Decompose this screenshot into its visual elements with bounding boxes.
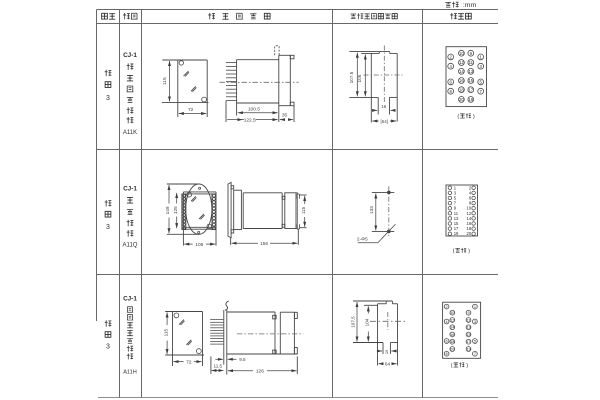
svg-text:3: 3: [474, 320, 476, 324]
svg-text:10: 10: [459, 51, 464, 56]
svg-text:107.5: 107.5: [351, 316, 356, 328]
svg-text:(: (: [453, 248, 455, 254]
svg-text:100.5: 100.5: [248, 107, 260, 113]
svg-text:105: 105: [357, 74, 362, 82]
svg-text:149: 149: [165, 206, 170, 214]
svg-text:CJ-1: CJ-1: [123, 296, 137, 303]
svg-text:104: 104: [365, 318, 370, 326]
svg-text:17: 17: [468, 87, 473, 92]
svg-text:5: 5: [474, 339, 476, 343]
svg-text:2-Φ5: 2-Φ5: [357, 237, 368, 243]
svg-text:64: 64: [385, 361, 391, 367]
svg-text:(: (: [457, 114, 459, 120]
svg-text:20: 20: [467, 231, 472, 236]
svg-text:20: 20: [459, 97, 464, 102]
svg-text:3: 3: [106, 224, 110, 231]
svg-text:CJ-1: CJ-1: [123, 52, 137, 59]
svg-text:16: 16: [384, 349, 389, 354]
svg-text:156: 156: [260, 241, 268, 247]
svg-text:11.5: 11.5: [213, 363, 222, 368]
svg-text:CJ-1: CJ-1: [123, 185, 137, 192]
svg-text:8: 8: [446, 352, 448, 356]
svg-text:10: 10: [450, 311, 454, 315]
svg-text:72: 72: [186, 359, 192, 365]
svg-text:9: 9: [467, 311, 469, 315]
svg-text:35: 35: [282, 112, 288, 118]
svg-text:3: 3: [106, 95, 110, 102]
svg-text:A11K: A11K: [123, 130, 137, 136]
svg-text:105: 105: [195, 242, 203, 248]
svg-text:): ): [466, 363, 468, 369]
svg-text:A11Q: A11Q: [123, 243, 138, 249]
svg-text:115: 115: [301, 206, 306, 214]
svg-text:15: 15: [466, 333, 470, 337]
svg-text:72: 72: [188, 107, 194, 113]
svg-text:): ): [468, 248, 470, 254]
svg-text:107.5: 107.5: [349, 71, 354, 83]
svg-text:13: 13: [466, 326, 470, 330]
svg-text::mm: :mm: [463, 2, 477, 9]
svg-text:15: 15: [468, 78, 473, 83]
svg-text:19: 19: [466, 347, 470, 351]
svg-text:): ): [473, 114, 475, 120]
svg-text:16: 16: [459, 78, 464, 83]
svg-text:6: 6: [446, 339, 448, 343]
svg-text:115: 115: [162, 77, 168, 85]
svg-text:115: 115: [163, 328, 168, 336]
svg-text:20: 20: [450, 347, 454, 351]
svg-text:4: 4: [446, 320, 448, 324]
svg-text:16: 16: [450, 333, 454, 337]
svg-text:122.5: 122.5: [244, 117, 256, 123]
svg-text:19: 19: [454, 231, 459, 236]
svg-text:12: 12: [459, 60, 464, 65]
svg-text:A11H: A11H: [123, 369, 137, 375]
svg-text:2: 2: [446, 305, 448, 309]
svg-text:(: (: [451, 363, 453, 369]
svg-text:19: 19: [468, 97, 473, 102]
svg-text:18: 18: [450, 340, 454, 344]
svg-text:16: 16: [381, 104, 386, 109]
svg-text:11: 11: [467, 318, 471, 322]
svg-text:125: 125: [173, 206, 178, 214]
svg-text:7: 7: [474, 352, 476, 356]
svg-text:18: 18: [459, 87, 464, 92]
svg-text:1: 1: [474, 305, 476, 309]
svg-text:13: 13: [468, 69, 473, 74]
svg-text:3: 3: [106, 344, 110, 351]
svg-text:14: 14: [459, 69, 464, 74]
svg-text:17: 17: [466, 340, 470, 344]
svg-text:[64]: [64]: [381, 119, 388, 124]
svg-text:126: 126: [256, 369, 264, 375]
svg-text:12: 12: [450, 318, 454, 322]
svg-text:11: 11: [469, 60, 474, 65]
svg-text:9.5: 9.5: [239, 357, 246, 362]
svg-text:14: 14: [450, 326, 454, 330]
svg-text:133: 133: [369, 206, 374, 214]
